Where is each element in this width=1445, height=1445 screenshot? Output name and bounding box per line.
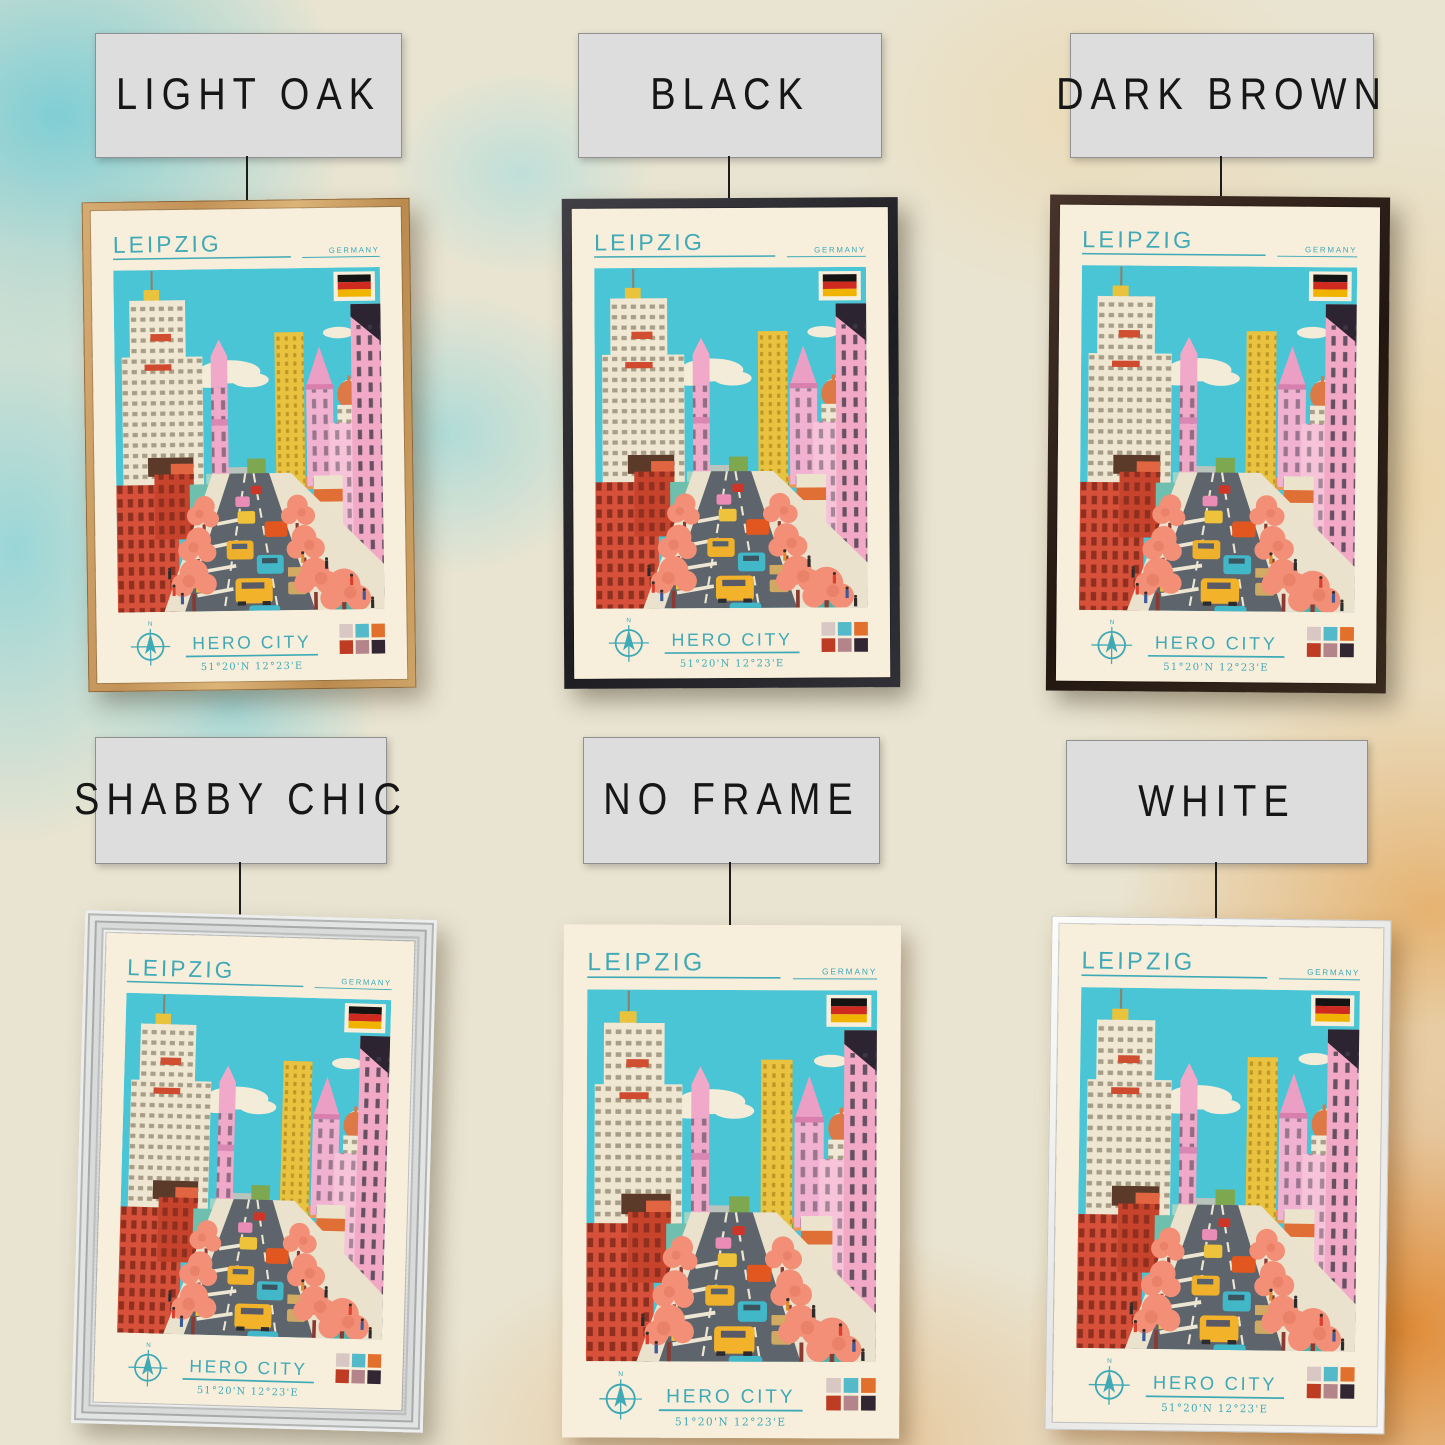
poster bbox=[1053, 924, 1384, 1426]
framed-poster-dark-brown bbox=[1046, 195, 1390, 694]
hanger-line bbox=[729, 862, 731, 925]
frame-label-text: WHITE bbox=[1138, 777, 1295, 828]
framed-poster-black bbox=[562, 197, 901, 689]
poster-artwork bbox=[1056, 205, 1380, 684]
poster bbox=[94, 933, 415, 1410]
hanger-line bbox=[728, 156, 730, 198]
framed-poster-light-oak bbox=[82, 198, 417, 693]
poster-artwork bbox=[562, 924, 901, 1438]
frame-label-text: LIGHT OAK bbox=[116, 70, 381, 121]
frame-label-text: NO FRAME bbox=[603, 775, 860, 826]
framed-poster-shabby-chic bbox=[71, 910, 437, 1433]
frame-label-text: SHABBY CHIC bbox=[74, 775, 408, 826]
hanger-line bbox=[239, 862, 241, 915]
framed-poster-white bbox=[1044, 916, 1391, 1435]
frame-label-no-frame: NO FRAME bbox=[583, 737, 880, 864]
frame-label-text: DARK BROWN bbox=[1056, 70, 1388, 121]
poster-artwork bbox=[1053, 924, 1384, 1426]
frame-label-dark-brown: DARK BROWN bbox=[1070, 33, 1374, 158]
framed-poster-no-frame bbox=[562, 924, 901, 1438]
frame-label-text: BLACK bbox=[650, 70, 810, 121]
poster bbox=[562, 924, 901, 1438]
frame-label-shabby-chic: SHABBY CHIC bbox=[95, 737, 387, 864]
hanger-line bbox=[1220, 156, 1222, 196]
poster bbox=[572, 207, 890, 679]
poster-artwork bbox=[91, 207, 408, 683]
hanger-line bbox=[1215, 862, 1217, 918]
poster-artwork bbox=[572, 207, 890, 679]
frame-label-white: WHITE bbox=[1066, 740, 1368, 864]
poster-artwork bbox=[94, 933, 415, 1410]
hanger-line bbox=[246, 156, 248, 200]
frame-label-black: BLACK bbox=[578, 33, 882, 158]
poster bbox=[91, 207, 408, 683]
frame-label-light-oak: LIGHT OAK bbox=[95, 33, 402, 158]
poster bbox=[1056, 205, 1380, 684]
